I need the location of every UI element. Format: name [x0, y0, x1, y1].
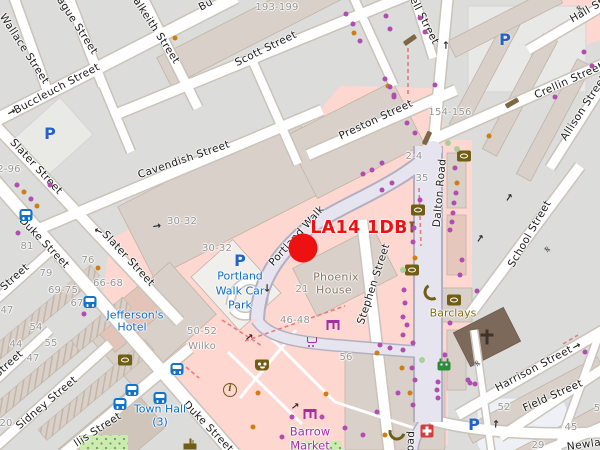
bus-stop-icon — [114, 398, 127, 410]
street-label: Stephen Street — [356, 242, 392, 326]
poi-label: Walk Car — [216, 286, 265, 297]
poi-dot — [448, 321, 453, 326]
housenumber-label: 29 — [531, 441, 544, 450]
poi-dot — [16, 231, 21, 236]
housenumber-label: 69-75 — [48, 286, 78, 296]
poi-dot — [401, 333, 406, 338]
poi-dot — [280, 435, 285, 440]
poi-dot — [590, 64, 595, 69]
poi-label: Jefferson's — [106, 310, 163, 321]
shop-icon — [118, 355, 132, 366]
poi-dot — [48, 183, 53, 188]
housenumber-label: 47 — [26, 354, 39, 364]
housenumber-label: 76 — [81, 256, 94, 266]
street-label: Scott Street — [234, 30, 299, 69]
information-icon: i — [223, 383, 237, 397]
housenumber-label: 55 — [44, 339, 57, 349]
poi-dot — [361, 433, 366, 438]
poi-dot — [388, 346, 393, 351]
poi-dot — [473, 382, 478, 387]
poi-dot — [82, 312, 87, 317]
poi-dot — [383, 433, 388, 438]
street-label: oad — [405, 430, 417, 450]
poi-dot — [320, 415, 325, 420]
street-label: Dalton Road — [432, 158, 448, 227]
tree-dot — [400, 267, 406, 273]
housenumber-label: 30-32 — [167, 217, 197, 227]
poi-dot — [436, 396, 441, 401]
poi-dot — [454, 191, 459, 196]
poi-dot — [388, 85, 393, 90]
oneway-arrow-icon: → — [261, 284, 271, 292]
housenumber-label: 44 — [9, 340, 22, 350]
street-label: Newla — [566, 437, 600, 450]
poi-dot — [401, 348, 406, 353]
oneway-arrow-icon: → — [290, 400, 303, 413]
poi-dot — [413, 256, 418, 261]
street-label: Buccleuch Street — [12, 62, 101, 116]
poi-dot — [344, 12, 349, 17]
poi-dot — [453, 166, 458, 171]
poi-label: Portland — [217, 271, 263, 282]
bus-stop-icon — [20, 209, 33, 221]
street-label: Wallace Street — [0, 12, 51, 86]
poi-dot — [251, 425, 256, 430]
shop-icon — [405, 265, 419, 276]
poi-dot — [408, 391, 413, 396]
housenumber-label: 54 — [29, 323, 42, 333]
poi-dot — [324, 392, 329, 397]
poi-dot — [423, 30, 428, 35]
oneway-arrow-icon: → — [152, 221, 162, 232]
poi-label: Market — [290, 440, 330, 450]
poi-dot — [455, 181, 460, 186]
street-label: Hall St — [568, 0, 600, 25]
telephone-icon — [422, 282, 443, 303]
poi-dot — [358, 39, 363, 44]
street-label: Preston Street — [337, 98, 414, 141]
marketplace-icon — [327, 320, 340, 330]
street-label: Field Street — [522, 378, 585, 414]
poi-label: Barclays — [430, 308, 477, 319]
poi-dot — [352, 31, 357, 36]
poi-dot — [553, 95, 558, 100]
tree-dot — [419, 357, 425, 363]
shop-icon — [411, 205, 425, 216]
poi-label: (3) — [152, 417, 168, 428]
map-overlay: Buccleuch StreetBuWallace Streetague Str… — [0, 0, 600, 450]
theatre-icon — [255, 360, 269, 371]
housenumber-label: 81 — [20, 242, 33, 252]
housenumber-label: 50-52 — [187, 327, 217, 337]
amusement-arcade-icon — [438, 362, 451, 371]
parking-icon: P — [468, 417, 480, 433]
poi-dot — [392, 95, 397, 100]
poi-dot — [29, 197, 34, 202]
church-cross-icon — [480, 330, 495, 345]
oneway-arrow-icon: → — [442, 41, 452, 49]
parking-icon: P — [44, 126, 56, 142]
street-label: Street — [0, 349, 25, 380]
oneway-arrow-icon: → — [492, 419, 503, 428]
housenumber-label: 79 — [39, 269, 52, 279]
poi-label: Phoenix — [313, 272, 359, 283]
housenumber-label: 46-48 — [280, 316, 310, 326]
poi-dot — [290, 415, 295, 420]
parking-icon: P — [499, 32, 511, 48]
bench-icon — [505, 97, 520, 108]
poi-dot — [405, 323, 410, 328]
poi-dot — [411, 341, 416, 346]
poi-dot — [475, 289, 480, 294]
housenumber-label: 154-156 — [428, 108, 471, 118]
poi-dot — [384, 14, 389, 19]
poi-dot — [361, 172, 366, 177]
street-label: ague Street — [55, 0, 100, 56]
poi-dot — [256, 391, 261, 396]
housenumber-label: 56 — [339, 353, 352, 363]
housenumber-label: 35 — [415, 174, 428, 184]
housenumber-label: 2-4 — [406, 152, 423, 162]
poi-dot — [443, 353, 448, 358]
poi-dot — [411, 403, 416, 408]
poi-dot — [403, 301, 408, 306]
housenumber-label: 45 — [564, 423, 577, 433]
street-label: alkeith Street — [131, 0, 181, 66]
poi-dot — [343, 426, 348, 431]
street-label: llis Street — [73, 411, 124, 449]
housenumber-label: 66-68 — [93, 279, 123, 289]
poi-dot — [380, 161, 385, 166]
poi-dot — [452, 201, 457, 206]
housenumber-label: 193-199 — [255, 3, 298, 13]
oneway-arrow-icon: → — [475, 233, 488, 246]
street-label: Cavendish Street — [137, 139, 232, 180]
poi-dot — [413, 131, 418, 136]
bench-icon — [403, 34, 417, 46]
bus-stop-icon — [84, 296, 97, 308]
poi-dot — [435, 388, 440, 393]
poi-dot — [436, 380, 441, 385]
housenumber-label: 21 — [295, 285, 308, 295]
gate-icon: ≠ — [540, 244, 552, 255]
poi-dot — [400, 366, 405, 371]
poi-dot — [380, 188, 385, 193]
poi-dot — [35, 204, 40, 209]
tree-dot — [454, 146, 460, 152]
poi-dot — [412, 226, 417, 231]
bus-stop-icon — [126, 384, 139, 396]
shop-icon — [457, 151, 471, 162]
oneway-arrow-icon: → — [244, 331, 257, 344]
poi-dot — [173, 36, 178, 41]
bus-stop-icon — [154, 392, 167, 404]
poi-dot — [375, 410, 380, 415]
poi-label: Hotel — [117, 322, 146, 333]
housenumber-label: 20 — [0, 419, 13, 429]
poi-dot — [450, 220, 455, 225]
housenumber-label: 2-96 — [0, 165, 21, 175]
poi-dot — [582, 50, 587, 55]
tree-dot — [445, 140, 451, 146]
poi-dot — [405, 121, 410, 126]
poi-label: Barrow — [290, 426, 330, 438]
street-label: Bu — [197, 0, 215, 13]
poi-dot — [401, 315, 406, 320]
poi-dot — [418, 198, 423, 203]
poi-label: Park — [228, 300, 252, 311]
poi-dot — [388, 27, 393, 32]
poi-dot — [433, 83, 438, 88]
poi-dot — [448, 228, 453, 233]
housenumber-label: 52 — [497, 403, 510, 413]
bench-icon — [422, 131, 432, 146]
poi-label: House — [316, 285, 352, 296]
poi-dot — [22, 190, 27, 195]
street-label: Sidney Street — [15, 375, 80, 432]
poi-label: Town Hall — [134, 404, 186, 415]
supermarket-icon — [305, 335, 317, 347]
clinic-icon — [421, 425, 434, 438]
housenumber-label: 67 — [70, 299, 83, 309]
housenumber-label: 47 — [0, 306, 13, 316]
poi-dot — [413, 378, 418, 383]
street-label: d Street — [0, 262, 31, 300]
poi-dot — [460, 258, 465, 263]
poi-dot — [418, 16, 423, 21]
poi-dot — [96, 266, 101, 271]
townhall-icon — [184, 439, 197, 450]
housenumber-label: Wilko — [188, 342, 216, 352]
poi-dot — [383, 77, 388, 82]
poi-dot — [451, 211, 456, 216]
housenumber-label: 30-32 — [202, 244, 232, 254]
parking-icon: P — [234, 253, 246, 269]
poi-dot — [370, 168, 375, 173]
poi-dot — [487, 134, 492, 139]
poi-dot — [378, 343, 383, 348]
poi-dot — [402, 288, 407, 293]
poi-dot — [458, 273, 463, 278]
shop-icon — [447, 295, 461, 306]
housenumber-label: 5 — [594, 404, 600, 414]
poi-dot — [375, 351, 380, 356]
marketplace-icon — [304, 409, 317, 419]
gate-icon: ≠ — [470, 358, 482, 369]
street-label: School Street — [507, 199, 554, 269]
poi-dot — [410, 366, 415, 371]
postcode-label: LA14 1DB — [310, 218, 408, 238]
poi-dot — [411, 240, 416, 245]
poi-dot — [396, 391, 401, 396]
bus-stop-icon — [171, 363, 184, 375]
poi-dot — [15, 183, 20, 188]
map-view[interactable]: Buccleuch StreetBuWallace Streetague Str… — [0, 0, 600, 450]
oneway-arrow-icon: → — [504, 192, 517, 205]
poi-dot — [583, 350, 588, 355]
poi-dot — [466, 378, 471, 383]
poi-dot — [351, 22, 356, 27]
poi-dot — [390, 181, 395, 186]
